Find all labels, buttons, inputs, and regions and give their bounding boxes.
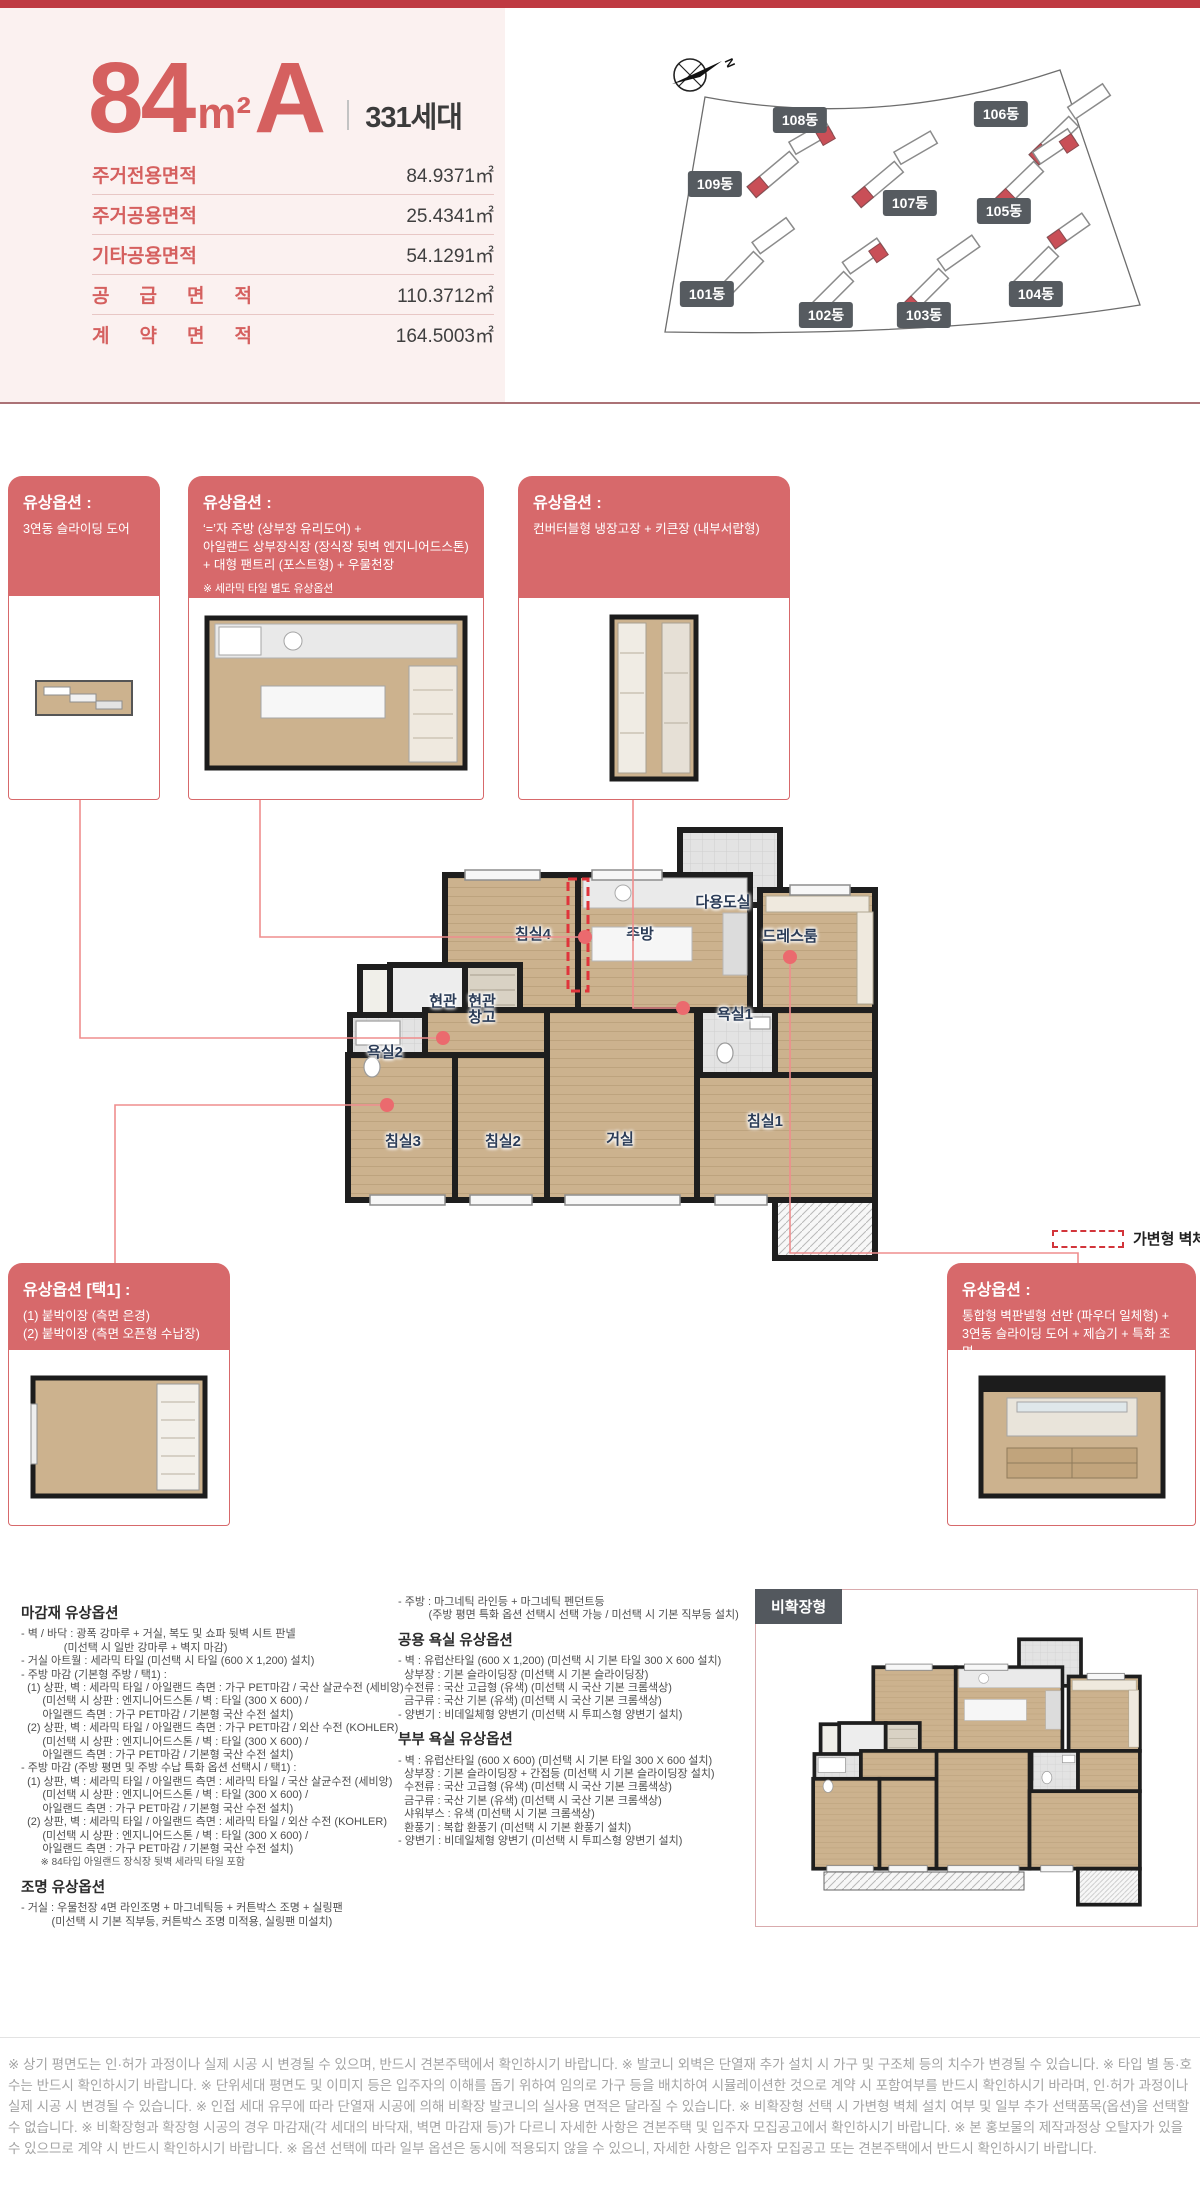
option-text-line: - 벽 : 유럽산타일 (600 X 600) (미선택 시 기본 타일 300… (398, 1755, 750, 1768)
callout-image-area (518, 598, 790, 800)
room-label-드레스룸: 드레스룸 (762, 929, 817, 945)
floor-plan-brochure-page: 84 m² A 331세대 주거전용면적 84.9371㎡ 주거공용면적 25.… (0, 0, 1200, 2193)
option-text-line: - 거실 : 우물천장 4면 라인조명 + 마그네틱등 + 커튼박스 조명 + … (21, 1902, 393, 1915)
option-text-line: 상부장 : 기본 슬라이딩장 + 간접등 (미선택 시 기본 슬라이딩장 설치) (398, 1768, 750, 1781)
option-text-line: (미선택 시 상판 : 엔지니어드스톤 / 벽 : 타일 (300 X 600)… (21, 1736, 393, 1749)
option-text-line: - 벽 / 바닥 : 광폭 강마루 + 거실, 복도 및 쇼파 뒷벽 시트 판넬 (21, 1628, 393, 1641)
building-label-103동: 103동 (897, 302, 951, 328)
callout-header: 유상옵션 : ‘=’자 주방 (상부장 유리도어) +아일랜드 상부장식장 (장… (188, 476, 484, 598)
building-label-106동: 106동 (974, 101, 1028, 127)
callout-line: 아일랜드 상부장식장 (장식장 뒷벽 엔지니어드스톤) (203, 538, 469, 556)
option-callout-wardrobe: 유상옵션 [택1] : (1) 붙박이장 (측면 은경)(2) 붙박이장 (측면… (8, 1263, 230, 1526)
option-text-line: (미선택 시 상판 : 엔지니어드스톤 / 벽 : 타일 (300 X 600)… (21, 1695, 393, 1708)
callout-line: (2) 붙박이장 (측면 오픈형 수납장) (23, 1325, 215, 1343)
area-value: 84.9371㎡ (406, 161, 494, 188)
room-label-주방: 주방 (626, 927, 654, 943)
wardrobe-option-image (29, 1374, 209, 1502)
footer-disclaimer: ※ 상기 평면도는 인·허가 과정이나 실제 시공 시 변경될 수 있으며, 반… (8, 2054, 1194, 2159)
callout-image-area (8, 1350, 230, 1526)
main-floor-plan (330, 815, 890, 1275)
room-label-침실1: 침실1 (747, 1114, 783, 1130)
callout-line: 3연동 슬라이딩 도어 (23, 520, 145, 538)
powder-shelf-option-image (977, 1374, 1167, 1502)
option-callout-kitchen: 유상옵션 : ‘=’자 주방 (상부장 유리도어) +아일랜드 상부장식장 (장… (188, 476, 484, 800)
dashed-wall-icon (1052, 1230, 1124, 1248)
option-text-line: 아일랜드 측면 : 가구 PET마감 / 기본형 국산 수전 설치) (21, 1709, 393, 1722)
option-text-line: 샤워부스 : 유색 (미선택 시 기본 크롬색상) (398, 1808, 750, 1821)
option-text-line: 마감재 유상옵션 (21, 1608, 393, 1621)
area-table-row: 주거공용면적 25.4341㎡ (92, 195, 494, 235)
option-text-line: - 주방 마감 (기본형 주방 / 택1) : (21, 1669, 393, 1682)
room-label-현관: 현관 (429, 994, 457, 1010)
area-value: 25.4341㎡ (406, 201, 494, 228)
area-table: 주거전용면적 84.9371㎡ 주거공용면적 25.4341㎡ 기타공용면적 5… (92, 155, 494, 354)
option-callout-powder-shelf: 유상옵션 : 통합형 벽판넬형 선반 (파우더 일체형) +3연동 슬라이딩 도… (947, 1263, 1196, 1526)
building-label-104동: 104동 (1009, 281, 1063, 307)
option-text-line: (2) 상판, 벽 : 세라믹 타일 / 아일랜드 측면 : 세라믹 타일 / … (21, 1816, 393, 1829)
area-table-row: 주거전용면적 84.9371㎡ (92, 155, 494, 195)
callout-image-area (188, 598, 484, 800)
option-text-line: (1) 상판, 벽 : 세라믹 타일 / 아일랜드 측면 : 세라믹 타일 / … (21, 1776, 393, 1789)
room-label-현관창고: 현관 창고 (468, 994, 496, 1026)
option-text-line: (주방 평면 특화 옵션 선택시 선택 가능 / 미선택 시 기본 직부등 설치… (398, 1609, 750, 1622)
option-text-line: ※ 84타입 아일랜드 장식장 뒷벽 세라믹 타일 포함 (21, 1856, 393, 1869)
callout-title: 유상옵션 : (533, 489, 775, 513)
non-expanded-plan-box: 비확장형 (755, 1589, 1198, 1927)
option-callout-sliding-door: 유상옵션 : 3연동 슬라이딩 도어 (8, 476, 160, 800)
non-expanded-floor-plan (788, 1624, 1168, 1920)
sliding-door-option-image (34, 675, 134, 721)
building-label-107동: 107동 (883, 190, 937, 216)
area-value: 54.1291㎡ (406, 241, 494, 268)
building-label-109동: 109동 (688, 171, 742, 197)
option-text-line: 부부 욕실 유상옵션 (398, 1734, 750, 1747)
callout-note: ※ 세라믹 타일 별도 유상옵션 (203, 580, 469, 596)
callout-line: 통합형 벽판넬형 선반 (파우더 일체형) + (962, 1307, 1181, 1325)
area-label: 주거전용면적 (92, 161, 252, 188)
area-value: 110.3712㎡ (397, 281, 494, 308)
option-text-line: - 주방 마감 (주방 평면 및 주방 수납 특화 옵션 선택시 / 택1) : (21, 1762, 393, 1775)
household-count: 331세대 (365, 94, 462, 136)
title-divider (347, 100, 349, 130)
room-label-욕실2: 욕실2 (367, 1045, 403, 1061)
callout-image-area (947, 1350, 1196, 1526)
svg-text:N: N (722, 56, 738, 70)
option-text-line: (1) 상판, 벽 : 세라믹 타일 / 아일랜드 측면 : 가구 PET마감 … (21, 1682, 393, 1695)
non-expanded-badge: 비확장형 (755, 1589, 842, 1624)
option-text-line: 금구류 : 국산 기본 (유색) (미선택 시 국산 기본 크롬색상) (398, 1795, 750, 1808)
compass-icon: N (672, 56, 738, 91)
option-text-line: - 주방 : 마그네틱 라인등 + 마그네틱 펜던트등 (398, 1596, 750, 1609)
option-text-line: 아일랜드 측면 : 가구 PET마감 / 기본형 국산 수전 설치) (21, 1803, 393, 1816)
option-text-line: - 거실 아트월 : 세라믹 타일 (미선택 시 타일 (600 X 1,200… (21, 1655, 393, 1668)
option-text-line: - 양변기 : 비데일체형 양변기 (미선택 시 투피스형 양변기 설치) (398, 1709, 750, 1722)
option-text-line: 상부장 : 기본 슬라이딩장 (미선택 시 기본 슬라이딩장) (398, 1669, 750, 1682)
building-label-101동: 101동 (680, 281, 734, 307)
option-text-line: 공용 욕실 유상옵션 (398, 1635, 750, 1648)
option-text-line: (미선택 시 상판 : 엔지니어드스톤 / 벽 : 타일 (300 X 600)… (21, 1830, 393, 1843)
legend-label: 가변형 벽체 (1133, 1228, 1200, 1249)
area-label: 기타공용면적 (92, 241, 252, 268)
area-table-row: 기타공용면적 54.1291㎡ (92, 235, 494, 275)
option-text-line: 수전류 : 국산 고급형 (유색) (미선택 시 국산 기본 크롬색상) (398, 1682, 750, 1695)
unit-type-variant: A (254, 58, 323, 138)
room-label-거실: 거실 (606, 1132, 634, 1148)
top-accent-bar (0, 0, 1200, 8)
footer-divider-line (0, 2037, 1200, 2038)
option-text-line: 아일랜드 측면 : 가구 PET마감 / 기본형 국산 수전 설치) (21, 1749, 393, 1762)
callout-title: 유상옵션 : (23, 489, 145, 513)
option-text-line: (미선택 시 기본 직부등, 커튼박스 조명 미적용, 실링팬 미설치) (21, 1916, 393, 1929)
area-table-row: 계 약 면 적 164.5003㎡ (92, 315, 494, 354)
building-label-108동: 108동 (773, 107, 827, 133)
callout-header: 유상옵션 : 통합형 벽판넬형 선반 (파우더 일체형) +3연동 슬라이딩 도… (947, 1263, 1196, 1350)
area-table-row: 공 급 면 적 110.3712㎡ (92, 275, 494, 315)
building-label-102동: 102동 (799, 302, 853, 328)
callout-header: 유상옵션 : 컨버터블형 냉장고장 + 키큰장 (내부서랍형) (518, 476, 790, 598)
option-text-line: (미선택 시 일반 강마루 + 벽지 마감) (21, 1642, 393, 1655)
area-label: 주거공용면적 (92, 201, 252, 228)
header-panel: 84 m² A 331세대 주거전용면적 84.9371㎡ 주거공용면적 25.… (0, 8, 505, 402)
area-label: 공 급 면 적 (92, 281, 252, 308)
option-text-line: (미선택 시 상판 : 엔지니어드스톤 / 벽 : 타일 (300 X 600)… (21, 1789, 393, 1802)
option-text-line: 환풍기 : 복합 환풍기 (미선택 시 기본 환풍기 설치) (398, 1822, 750, 1835)
room-label-침실4: 침실4 (515, 927, 551, 943)
room-label-침실2: 침실2 (485, 1134, 521, 1150)
callout-line: + 대형 팬트리 (포스트형) + 우물천장 (203, 556, 469, 574)
room-label-다용도실: 다용도실 (695, 895, 750, 911)
callout-line: 컨버터블형 냉장고장 + 키큰장 (내부서랍형) (533, 520, 775, 538)
options-text-left-column: 마감재 유상옵션- 벽 / 바닥 : 광폭 강마루 + 거실, 복도 및 쇼파 … (21, 1596, 393, 1929)
callout-header: 유상옵션 [택1] : (1) 붙박이장 (측면 은경)(2) 붙박이장 (측면… (8, 1263, 230, 1350)
callout-header: 유상옵션 : 3연동 슬라이딩 도어 (8, 476, 160, 596)
callout-title: 유상옵션 : (203, 489, 469, 513)
option-text-line: - 양변기 : 비데일체형 양변기 (미선택 시 투피스형 양변기 설치) (398, 1835, 750, 1848)
fridge-cabinet-option-image (608, 613, 700, 785)
option-text-line: (2) 상판, 벽 : 세라믹 타일 / 아일랜드 측면 : 가구 PET마감 … (21, 1722, 393, 1735)
callout-title: 유상옵션 : (962, 1276, 1181, 1300)
callout-line: ‘=’자 주방 (상부장 유리도어) + (203, 520, 469, 538)
callout-title: 유상옵션 [택1] : (23, 1276, 215, 1300)
room-label-침실3: 침실3 (385, 1134, 421, 1150)
area-value: 164.5003㎡ (396, 321, 494, 348)
options-text-right-column: - 주방 : 마그네틱 라인등 + 마그네틱 펜던트등 (주방 평면 특화 옵션… (398, 1596, 750, 1849)
area-label: 계 약 면 적 (92, 321, 252, 348)
kitchen-option-image (203, 614, 469, 784)
building-label-105동: 105동 (977, 198, 1031, 224)
flexible-wall-legend: 가변형 벽체 (1052, 1228, 1200, 1249)
option-text-line: 금구류 : 국산 기본 (유색) (미선택 시 국산 기본 크롬색상) (398, 1695, 750, 1708)
option-text-line: - 벽 : 유럽산타일 (600 X 1,200) (미선택 시 기본 타일 3… (398, 1655, 750, 1668)
option-text-line: 수전류 : 국산 고급형 (유색) (미선택 시 국산 기본 크롬색상) (398, 1781, 750, 1794)
unit-type-number: 84 (88, 58, 193, 138)
option-text-line: 조명 유상옵션 (21, 1882, 393, 1895)
unit-type-title: 84 m² A 331세대 (88, 58, 462, 138)
room-label-욕실1: 욕실1 (717, 1007, 753, 1023)
option-text-line: 아일랜드 측면 : 가구 PET마감 / 기본형 국산 수전 설치) (21, 1843, 393, 1856)
callout-line: (1) 붙박이장 (측면 은경) (23, 1307, 215, 1325)
callout-image-area (8, 596, 160, 800)
unit-type-unit: m² (197, 92, 251, 136)
option-callout-fridge-cabinet: 유상옵션 : 컨버터블형 냉장고장 + 키큰장 (내부서랍형) (518, 476, 790, 800)
header-divider-line (0, 402, 1200, 404)
